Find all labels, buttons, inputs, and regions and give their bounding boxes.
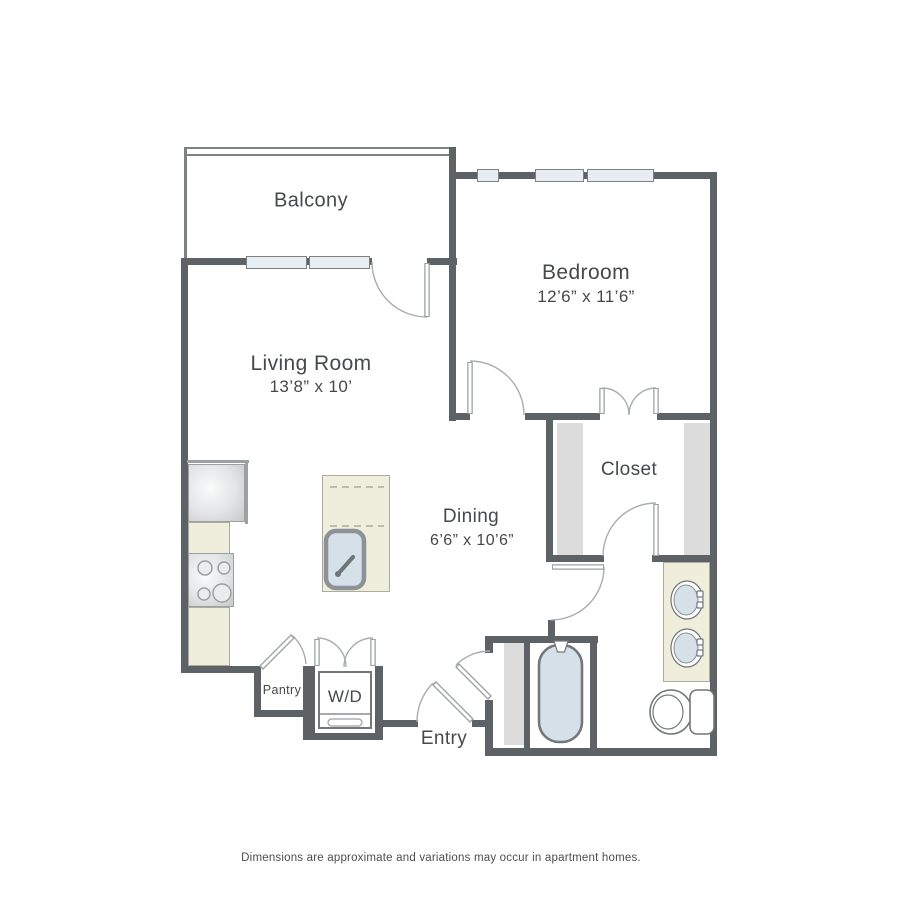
vanity-sink-1-icon (671, 581, 703, 619)
laundry-double-doors (317, 638, 373, 667)
closet-double-doors (602, 388, 656, 415)
pantry-label: Pantry (263, 683, 302, 697)
closet-label: Closet (601, 459, 657, 481)
fixtures-overlay (0, 0, 900, 900)
bathroom-hall-door (551, 567, 604, 620)
bathroom-entry-door (456, 651, 490, 698)
entry-door (417, 683, 472, 722)
bedroom-label: Bedroom (542, 261, 630, 285)
washer-dryer-detail (319, 714, 371, 726)
vanity-sink-2-icon (671, 629, 703, 667)
disclaimer-text: Dimensions are approximate and variation… (241, 852, 641, 864)
kitchen-island-sink-icon (326, 531, 364, 588)
dining-dimensions: 6’6” x 10’6” (430, 532, 514, 550)
dining-label: Dining (443, 506, 499, 528)
pantry-door (261, 636, 306, 668)
entry-label: Entry (421, 728, 467, 750)
closet-rear-door (603, 503, 656, 556)
living-room-label: Living Room (250, 352, 371, 376)
balcony-label: Balcony (274, 190, 348, 213)
washer-dryer-label: W/D (328, 687, 362, 707)
floor-plan-canvas: Balcony Living Room 13’8” x 10’ Bedroom … (0, 0, 900, 900)
kitchen-island-details (326, 487, 384, 588)
balcony-door (372, 262, 427, 317)
bedroom-dimensions: 12’6” x 11’6” (537, 287, 635, 307)
bathtub-icon (539, 641, 582, 742)
bedroom-door (470, 361, 524, 415)
toilet-icon (650, 690, 714, 734)
living-room-dimensions: 13’8” x 10’ (270, 377, 353, 397)
range-burners (198, 561, 231, 602)
